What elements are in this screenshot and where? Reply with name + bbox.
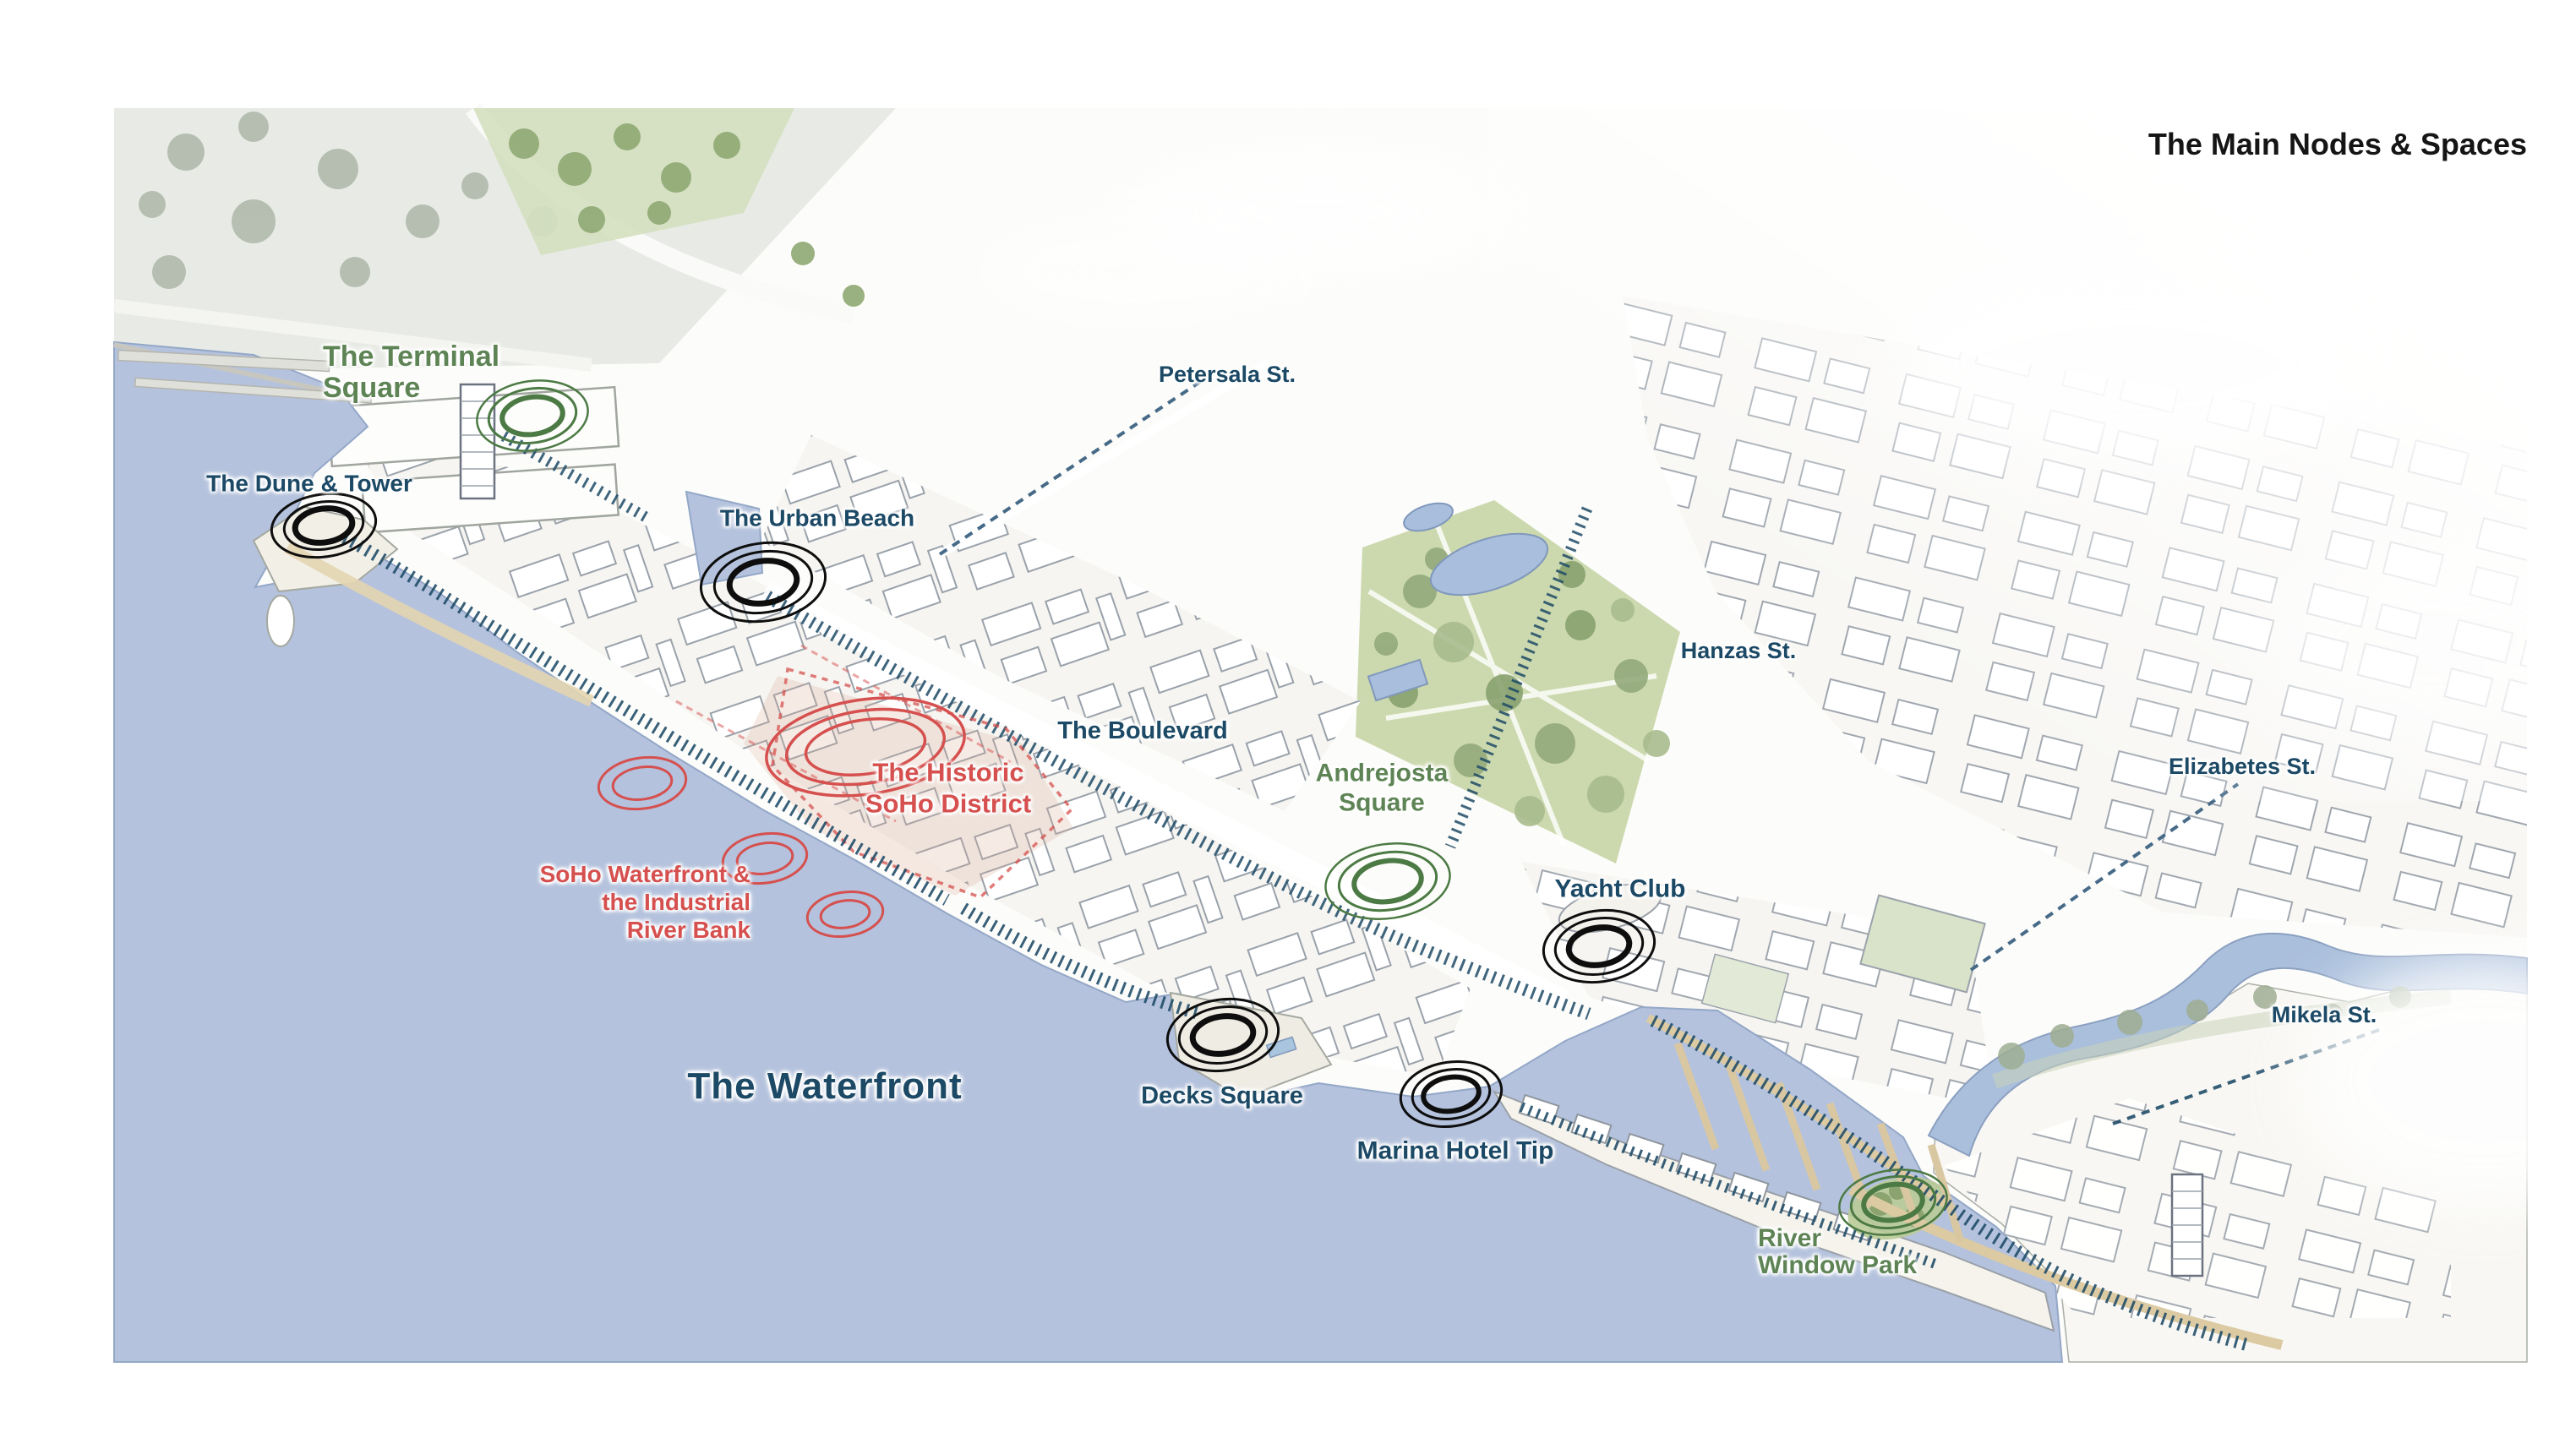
page-title: The Main Nodes & Spaces [2148, 127, 2527, 162]
map-canvas [0, 0, 2576, 1449]
masterplan-page: The Main Nodes & Spaces The Terminal Squ… [0, 0, 2576, 1449]
